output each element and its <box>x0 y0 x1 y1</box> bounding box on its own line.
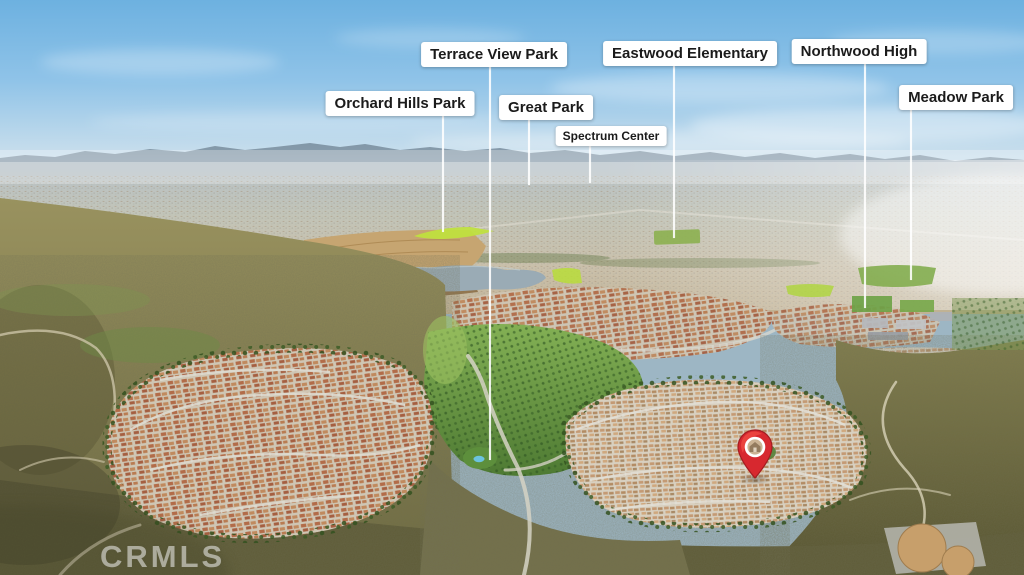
label-orchard-hills-park: Orchard Hills Park <box>326 91 475 116</box>
leader-line-terrace-view-park <box>489 65 491 460</box>
eastwood-school-field <box>654 229 700 245</box>
highlight-east-park <box>786 284 834 297</box>
leader-line-eastwood-elementary <box>673 64 675 238</box>
leader-line-meadow-park <box>910 108 912 280</box>
meadow-park-field <box>858 265 936 287</box>
label-terrace-view-park: Terrace View Park <box>421 42 567 67</box>
leader-line-great-park <box>528 118 530 185</box>
housing-tract-right <box>565 380 866 528</box>
leader-line-orchard-hills-park <box>442 114 444 232</box>
label-great-park: Great Park <box>499 95 593 120</box>
terrace-view-park-site <box>463 447 497 469</box>
aerial-scene <box>0 0 1024 575</box>
leader-line-spectrum-center <box>589 145 591 183</box>
label-northwood-high: Northwood High <box>792 39 927 64</box>
housing-tract-left <box>107 348 433 538</box>
label-eastwood-elementary: Eastwood Elementary <box>603 41 777 66</box>
crmls-watermark: CRMLS <box>100 539 225 575</box>
label-meadow-park: Meadow Park <box>899 85 1013 110</box>
leader-line-northwood-high <box>864 62 866 308</box>
label-spectrum-center: Spectrum Center <box>556 126 667 146</box>
water-tank-pads <box>884 522 986 575</box>
aerial-photo: Terrace View Park Orchard Hills Park Gre… <box>0 0 1024 575</box>
